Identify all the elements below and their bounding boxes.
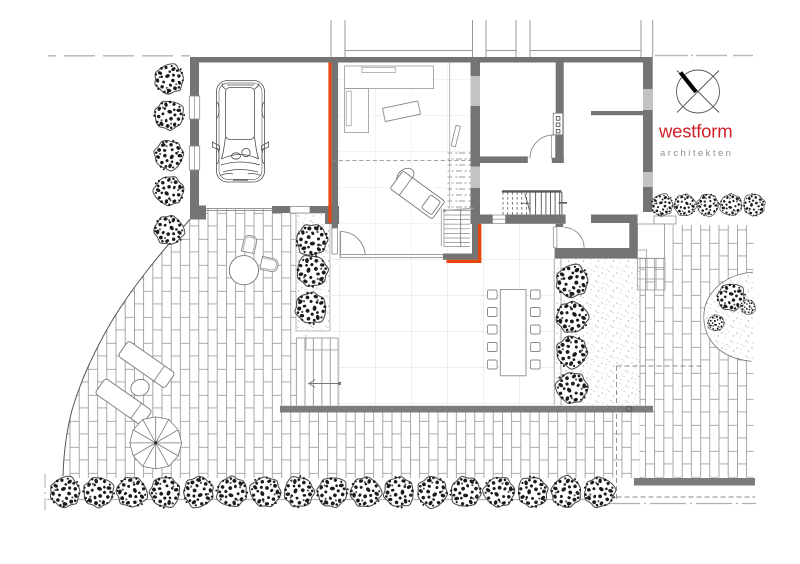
svg-text:westform: westform <box>658 121 732 142</box>
svg-text:architekten: architekten <box>660 148 733 159</box>
